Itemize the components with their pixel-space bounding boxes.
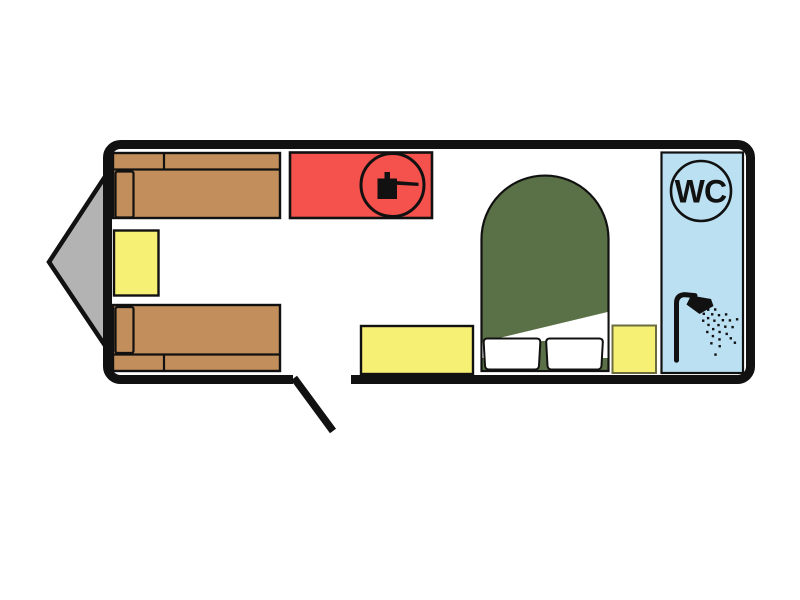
svg-text:WC: WC bbox=[675, 174, 727, 210]
